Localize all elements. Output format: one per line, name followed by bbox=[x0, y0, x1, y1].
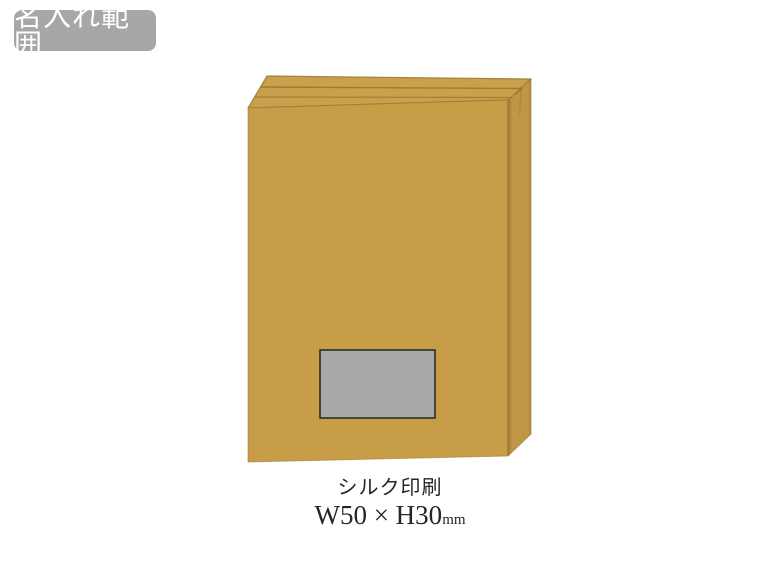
lid-rim-line-inner bbox=[255, 97, 514, 98]
imprint-area-preview: 名入れ範囲 シルク印刷 W50 × H30m bbox=[0, 0, 760, 570]
box-side-face bbox=[508, 79, 531, 456]
print-area-rect bbox=[320, 350, 435, 418]
print-size-value: W50 × H30 bbox=[314, 500, 442, 530]
print-method-text: シルク印刷 bbox=[314, 476, 465, 500]
print-size-text: W50 × H30mm bbox=[314, 500, 465, 535]
print-size-unit: mm bbox=[442, 512, 465, 528]
print-spec-caption: シルク印刷 W50 × H30mm bbox=[314, 476, 465, 535]
